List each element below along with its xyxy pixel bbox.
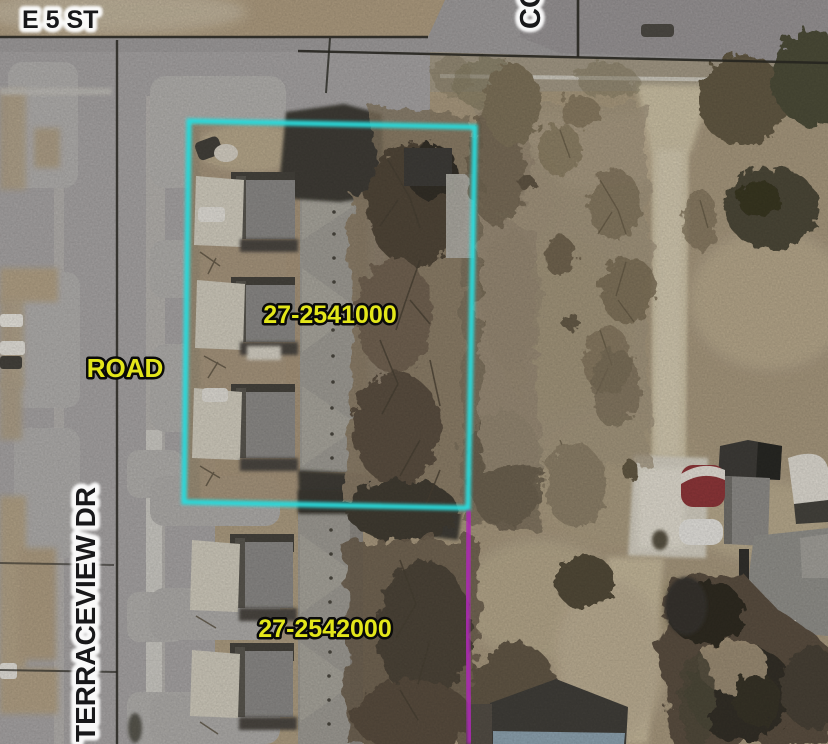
- svg-text:ROAD: ROAD: [87, 353, 164, 383]
- svg-text:TERRACEVIEW DR: TERRACEVIEW DR: [70, 487, 101, 742]
- svg-text:E 5 ST: E 5 ST: [22, 6, 98, 34]
- svg-text:27-2541000: 27-2541000: [263, 301, 396, 329]
- svg-text:27-2542000: 27-2542000: [258, 615, 391, 643]
- svg-text:CO: CO: [515, 0, 547, 29]
